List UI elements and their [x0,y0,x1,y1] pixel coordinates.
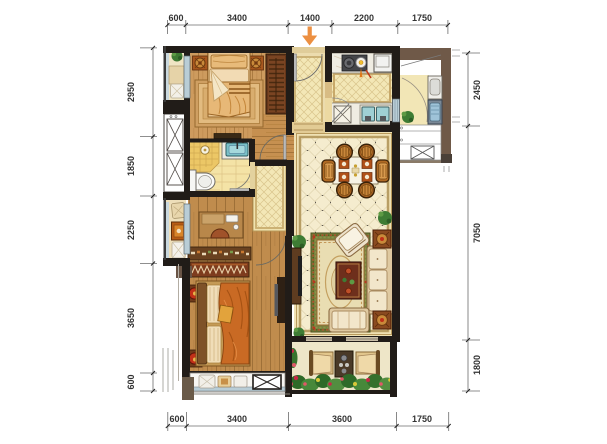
svg-text:3400: 3400 [227,414,247,424]
svg-text:1750: 1750 [412,414,432,424]
svg-text:2250: 2250 [126,220,136,240]
svg-text:1800: 1800 [472,355,482,375]
svg-text:2950: 2950 [126,82,136,102]
svg-text:600: 600 [169,414,184,424]
svg-text:1850: 1850 [126,156,136,176]
svg-text:3650: 3650 [126,308,136,328]
svg-text:7050: 7050 [472,223,482,243]
svg-text:1750: 1750 [412,13,432,23]
svg-text:2200: 2200 [354,13,374,23]
svg-text:3600: 3600 [332,414,352,424]
svg-text:2450: 2450 [472,80,482,100]
svg-text:600: 600 [168,13,183,23]
svg-text:600: 600 [126,374,136,389]
svg-text:1400: 1400 [300,13,320,23]
svg-text:3400: 3400 [227,13,247,23]
